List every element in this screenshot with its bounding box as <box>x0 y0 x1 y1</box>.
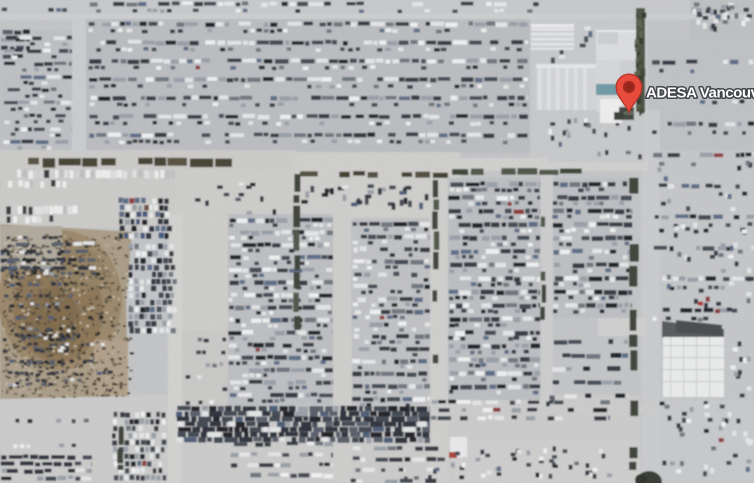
svg-text:ADESA Vancouv: ADESA Vancouv <box>646 85 754 102</box>
